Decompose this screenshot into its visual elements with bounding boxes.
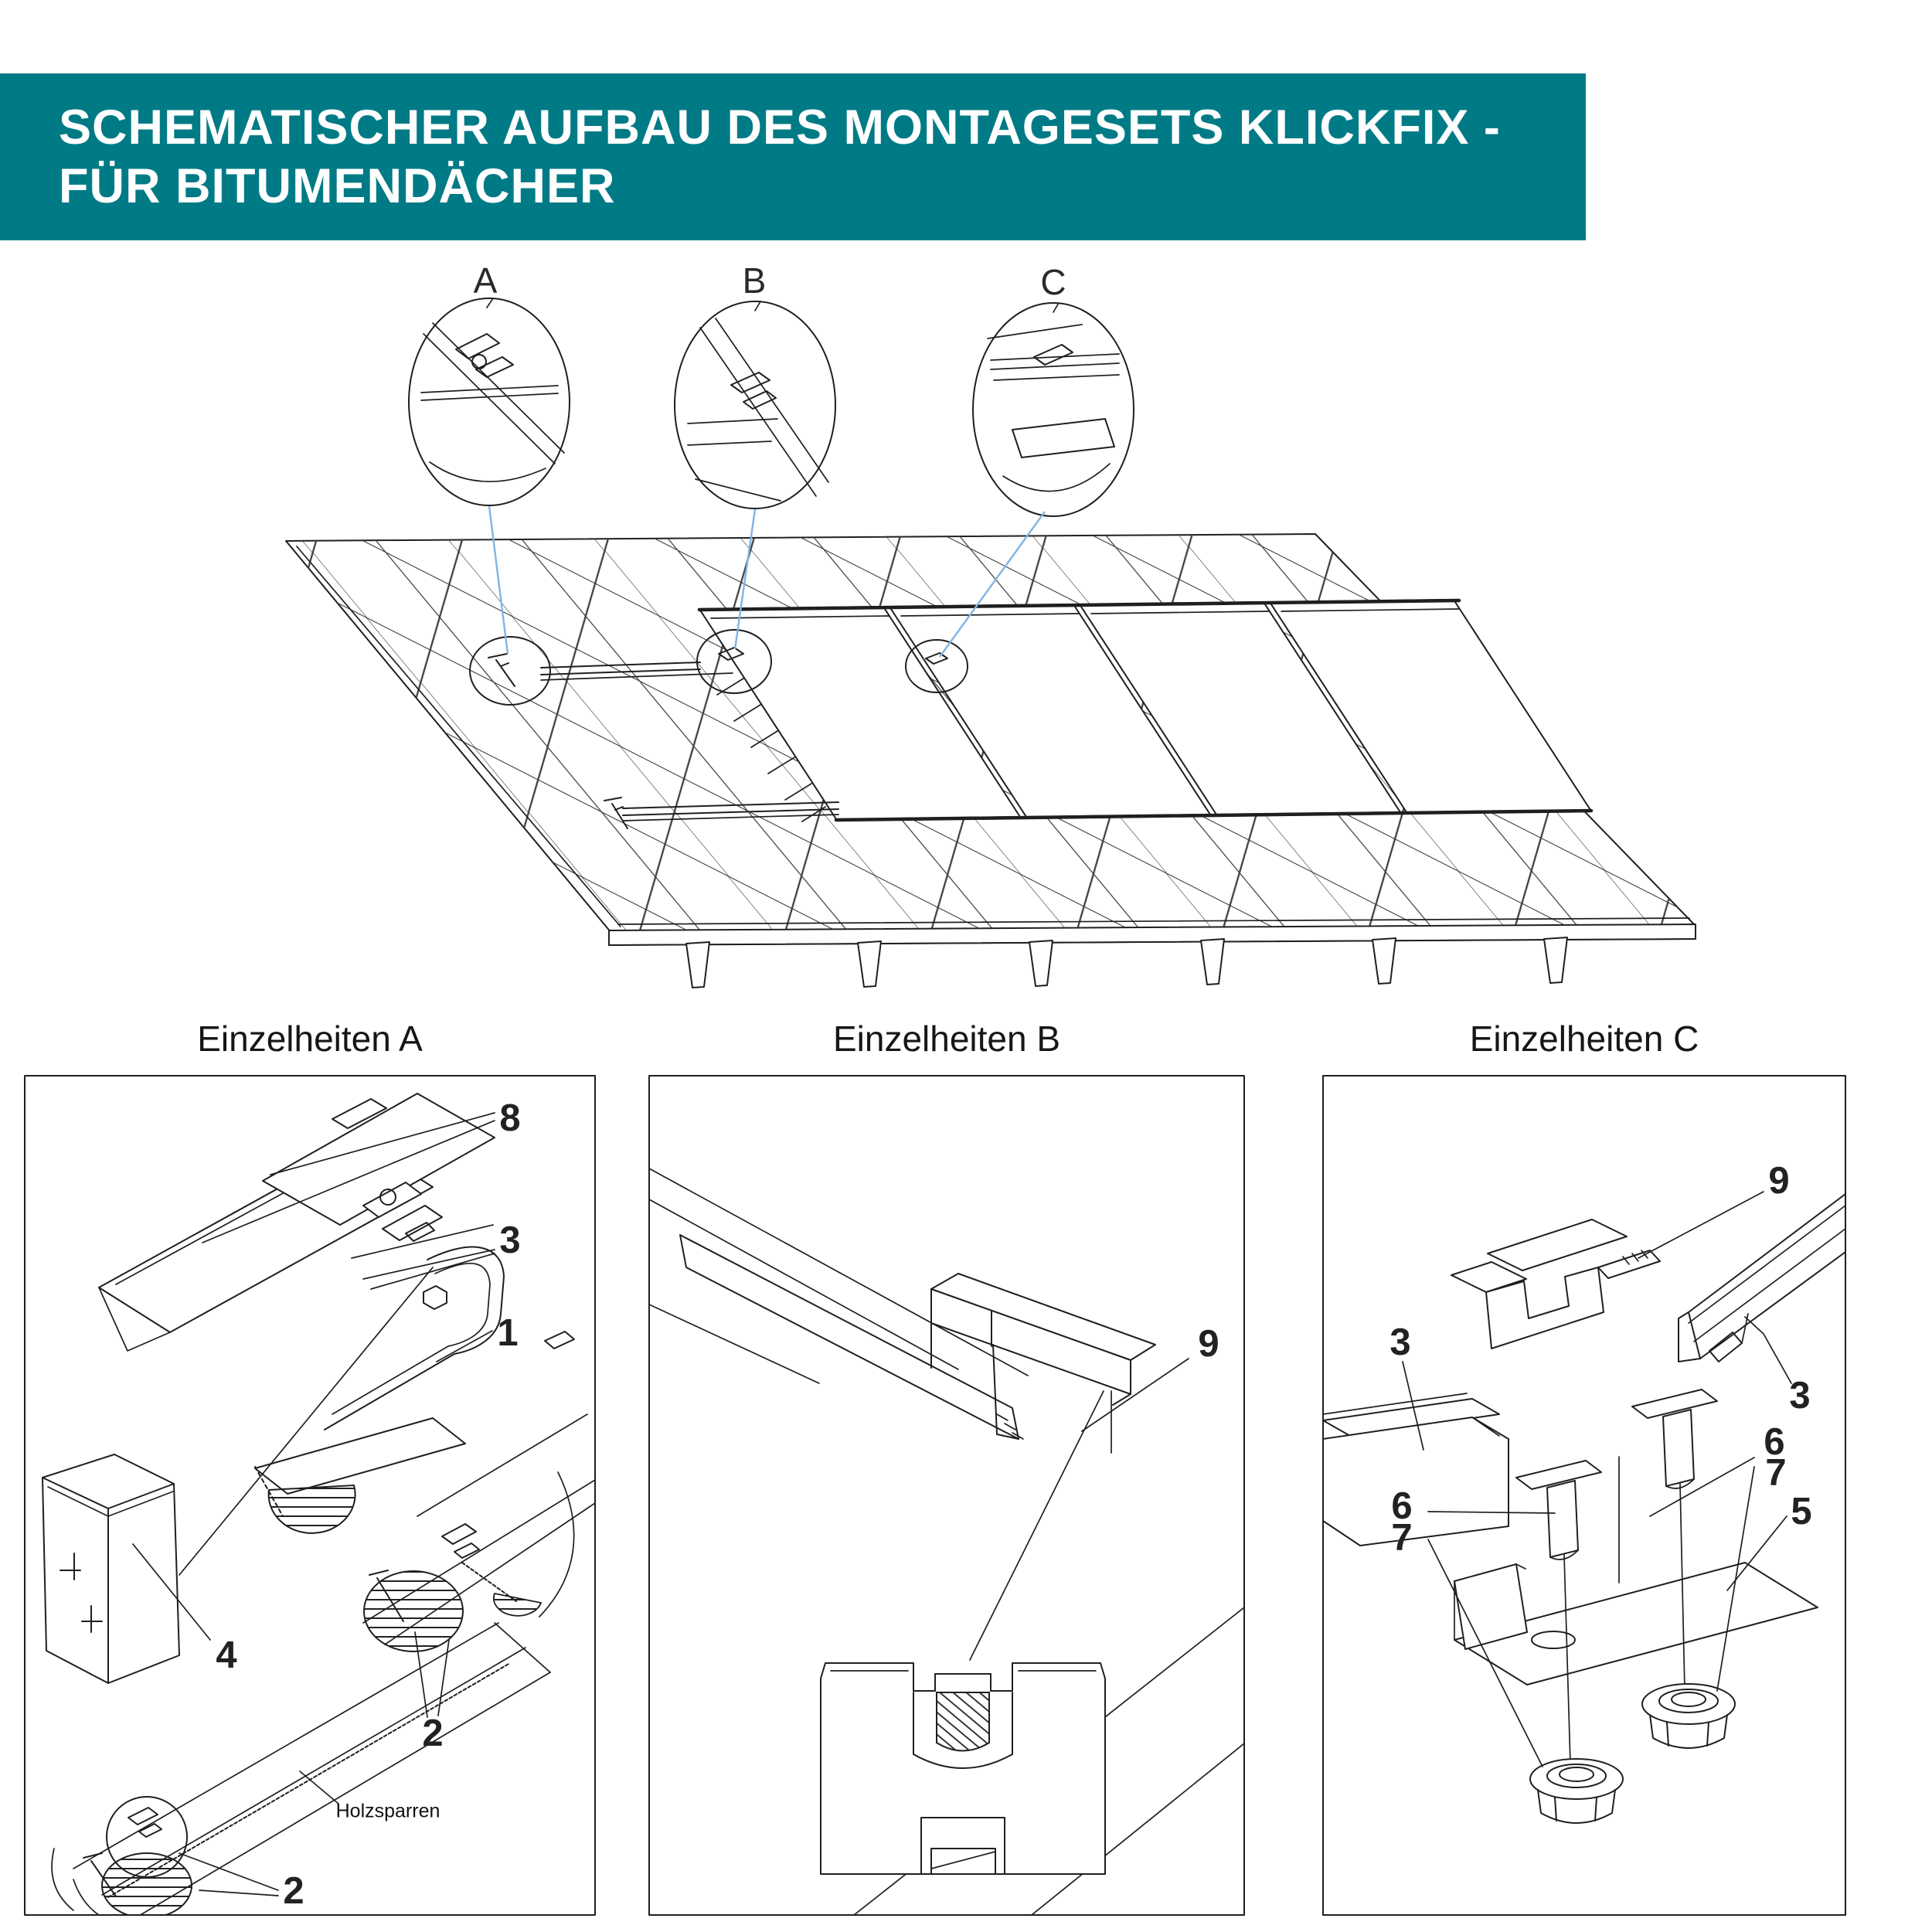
rail-profile — [821, 1663, 1105, 1874]
callout-8: 8 — [499, 1097, 520, 1140]
bracket-plate — [1454, 1563, 1818, 1685]
schematic-drawing — [0, 0, 1932, 1932]
end-clamp — [680, 1235, 1155, 1439]
section-title-c: Einzelheiten C — [1470, 1018, 1699, 1060]
callout-9-b: 9 — [1198, 1322, 1219, 1366]
rail-segment — [1679, 1194, 1845, 1362]
detail-ellipse-a — [409, 298, 570, 505]
panel-b-drawing — [649, 1168, 1244, 1918]
callout-2-bottom: 2 — [283, 1869, 304, 1913]
callout-4: 4 — [216, 1634, 236, 1677]
callout-2-top: 2 — [422, 1712, 443, 1755]
mid-clamp — [1451, 1219, 1660, 1349]
detail-ellipse-c — [973, 303, 1134, 516]
rafter-legs — [686, 937, 1567, 988]
holzsparren-note: Holzsparren — [336, 1801, 440, 1823]
callout-7-right: 7 — [1765, 1451, 1786, 1495]
flange-nuts — [1530, 1684, 1735, 1823]
callout-7-left: 7 — [1391, 1516, 1412, 1560]
callout-1: 1 — [497, 1311, 518, 1355]
callout-9-c: 9 — [1768, 1159, 1789, 1202]
callout-3-left: 3 — [1389, 1321, 1410, 1364]
end-cap — [43, 1454, 179, 1683]
detail-label-b: B — [743, 260, 767, 301]
callout-3-right: 3 — [1789, 1374, 1810, 1417]
detail-label-c: C — [1040, 261, 1066, 303]
detail-ellipse-b — [675, 301, 835, 509]
callout-5: 5 — [1791, 1490, 1811, 1533]
roof-overview — [286, 298, 1696, 988]
section-title-a: Einzelheiten A — [197, 1018, 423, 1060]
callout-3: 3 — [499, 1219, 520, 1262]
detail-label-a: A — [474, 260, 498, 301]
section-title-b: Einzelheiten B — [833, 1018, 1060, 1060]
schematic-page: SCHEMATISCHER AUFBAU DES MONTAGESETS KLI… — [0, 0, 1932, 1932]
